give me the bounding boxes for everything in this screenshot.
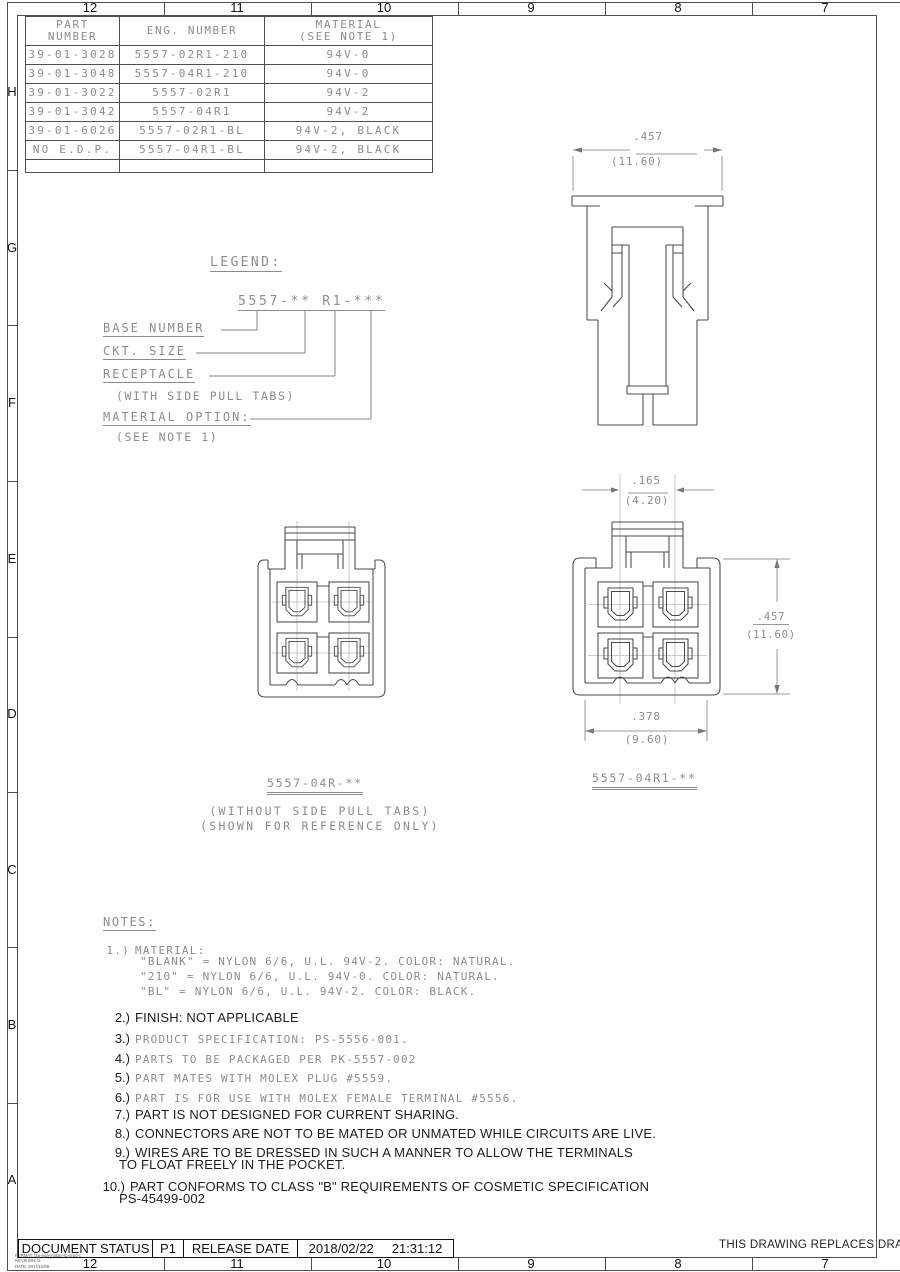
note-4-text: PARTS TO BE PACKAGED PER PK-5557-002: [135, 1053, 417, 1066]
top-ruler-divider: [458, 2, 459, 15]
note-1-sub-210: "210" = NYLON 6/6, U.L. 94V-0. COLOR: NA…: [140, 971, 500, 983]
note-2-text: FINISH: NOT APPLICABLE: [135, 1010, 299, 1025]
front-right-right-dim-mm: (11.60): [746, 629, 796, 641]
cell-material: 94V-0: [265, 46, 433, 65]
cell-part: 39-01-3048: [26, 65, 120, 84]
note-8-number: 8.): [100, 1126, 130, 1141]
note-7: 7.)PART IS NOT DESIGNED FOR CURRENT SHAR…: [100, 1104, 459, 1123]
header-part-line2: NUMBER: [26, 31, 119, 43]
note-1-sub-blank: "BLANK" = NYLON 6/6, U.L. 94V-2. COLOR: …: [140, 956, 515, 968]
bottom-ruler-7: 7: [815, 1257, 835, 1271]
bottom-ruler-divider: [752, 1258, 753, 1270]
bottom-ruler-divider: [311, 1258, 312, 1270]
note-10-text: PART CONFORMS TO CLASS "B" REQUIREMENTS …: [130, 1179, 649, 1194]
note-5: 5.)PART MATES WITH MOLEX PLUG #5559.: [100, 1067, 393, 1086]
note-3-text: PRODUCT SPECIFICATION: PS-5556-001.: [135, 1033, 409, 1046]
table-row: 39-01-3028 5557-02R1-210 94V-0: [26, 46, 433, 65]
front-left-caption-2: (SHOWN FOR REFERENCE ONLY): [200, 820, 440, 833]
release-date-value: 2018/02/22 21:31:12: [298, 1240, 453, 1257]
note-9-continuation: TO FLOAT FREELY IN THE POCKET.: [119, 1158, 345, 1172]
note-7-text: PART IS NOT DESIGNED FOR CURRENT SHARING…: [135, 1107, 459, 1122]
cell-empty: [120, 160, 265, 173]
legend-ckt-size-label: CKT. SIZE: [103, 345, 186, 360]
header-part-number: PART NUMBER: [26, 17, 120, 46]
cell-part: 39-01-6026: [26, 122, 120, 141]
front-right-top-dim-inch: .165: [616, 475, 676, 487]
header-material-line2: (SEE NOTE 1): [265, 31, 432, 43]
note-2-number: 2.): [100, 1010, 130, 1025]
cell-material: 94V-0: [265, 65, 433, 84]
header-eng-number: ENG. NUMBER: [120, 17, 265, 46]
left-ruler-H: H: [5, 85, 19, 99]
legend-receptacle-sub: (WITH SIDE PULL TABS): [116, 390, 295, 403]
header-eng-line1: ENG. NUMBER: [120, 25, 264, 37]
left-ruler-F: F: [5, 396, 19, 410]
replaces-drawing-note: THIS DRAWING REPLACES DRAW: [719, 1239, 900, 1252]
left-ruler-C: C: [5, 863, 19, 877]
parts-table: PART NUMBER ENG. NUMBER MATERIAL (SEE NO…: [25, 16, 433, 173]
note-8-text: CONNECTORS ARE NOT TO BE MATED OR UNMATE…: [135, 1126, 656, 1141]
cell-material: 94V-2, BLACK: [265, 122, 433, 141]
table-row: 39-01-3022 5557-02R1 94V-2: [26, 84, 433, 103]
table-header-row: PART NUMBER ENG. NUMBER MATERIAL (SEE NO…: [26, 17, 433, 46]
legend-part-code: 5557-** R1-***: [238, 295, 385, 311]
note-6-number: 6.): [100, 1090, 130, 1105]
drawing-sheet: 12 11 10 9 8 7 12 11 10 9 8 7 H G F E D …: [0, 0, 900, 1272]
date-line: DATE: 2017/10/06: [15, 1264, 81, 1269]
left-ruler-A: A: [5, 1173, 19, 1187]
front-right-view-label: 5557-04R1-**: [592, 772, 697, 790]
note-4-number: 4.): [100, 1051, 130, 1066]
front-right-bottom-dim-inch: .378: [616, 711, 676, 723]
note-1-sub-bl: "BL" = NYLON 6/6, U.L. 94V-2. COLOR: BLA…: [140, 986, 476, 998]
top-ruler-10: 10: [374, 1, 394, 15]
table-row: 39-01-3042 5557-04R1 94V-2: [26, 103, 433, 122]
legend-material-option-label: MATERIAL OPTION:: [103, 411, 251, 426]
cell-eng: 5557-02R1-210: [120, 46, 265, 65]
left-ruler-divider: [7, 481, 17, 482]
top-ruler-11: 11: [227, 1, 247, 15]
left-ruler-divider: [7, 170, 17, 171]
cell-eng: 5557-02R1-BL: [120, 122, 265, 141]
cell-eng: 5557-04R1-BL: [120, 141, 265, 160]
cell-part: 39-01-3028: [26, 46, 120, 65]
left-ruler-divider: [7, 325, 17, 326]
side-view-dim-inch: .457: [618, 131, 678, 143]
top-ruler-divider: [164, 2, 165, 15]
bottom-ruler-divider: [458, 1258, 459, 1270]
note-2: 2.)FINISH: NOT APPLICABLE: [100, 1007, 299, 1026]
cell-material: 94V-2: [265, 103, 433, 122]
note-8: 8.)CONNECTORS ARE NOT TO BE MATED OR UNM…: [100, 1123, 656, 1142]
front-left-caption-1: (WITHOUT SIDE PULL TABS): [208, 805, 432, 818]
cell-eng: 5557-04R1-210: [120, 65, 265, 84]
notes-title: NOTES:: [103, 916, 156, 931]
cell-eng: 5557-02R1: [120, 84, 265, 103]
bottom-ruler-8: 8: [668, 1257, 688, 1271]
table-empty-row: [26, 160, 433, 173]
table-row: NO E.D.P. 5557-04R1-BL 94V-2, BLACK: [26, 141, 433, 160]
note-10-continuation: PS-45499-002: [119, 1192, 205, 1206]
bottom-ruler-10: 10: [374, 1257, 394, 1271]
document-status-value: P1: [153, 1240, 184, 1257]
table-row: 39-01-6026 5557-02R1-BL 94V-2, BLACK: [26, 122, 433, 141]
top-ruler-divider: [605, 2, 606, 15]
top-ruler-7: 7: [815, 1, 835, 15]
note-7-number: 7.): [100, 1107, 130, 1122]
legend-receptacle-label: RECEPTACLE: [103, 368, 195, 383]
cell-empty: [26, 160, 120, 173]
bottom-ruler-divider: [164, 1258, 165, 1270]
left-ruler-divider: [7, 1103, 17, 1104]
front-right-right-dim-inch: .457: [753, 611, 790, 625]
cell-empty: [265, 160, 433, 173]
note-1-number: 1.): [100, 944, 130, 957]
top-ruler-8: 8: [668, 1, 688, 15]
note-5-text: PART MATES WITH MOLEX PLUG #5559.: [135, 1072, 393, 1085]
outer-border-top: [7, 2, 900, 3]
bottom-ruler-11: 11: [227, 1257, 247, 1271]
front-right-bottom-dim-mm: (9.60): [613, 734, 681, 746]
note-3-number: 3.): [100, 1031, 130, 1046]
top-ruler-9: 9: [521, 1, 541, 15]
format-revision-block: FORMAT: brg-ega-master-tb-prod-c REVISIO…: [15, 1253, 81, 1269]
bottom-ruler-9: 9: [521, 1257, 541, 1271]
top-ruler-12: 12: [80, 1, 100, 15]
cell-part: 39-01-3022: [26, 84, 120, 103]
bottom-ruler-divider: [605, 1258, 606, 1270]
top-ruler-divider: [311, 2, 312, 15]
header-material: MATERIAL (SEE NOTE 1): [265, 17, 433, 46]
cell-part: NO E.D.P.: [26, 141, 120, 160]
legend-title: LEGEND:: [210, 256, 282, 272]
left-ruler-divider: [7, 947, 17, 948]
table-row: 39-01-3048 5557-04R1-210 94V-0: [26, 65, 433, 84]
document-status-bar: DOCUMENT STATUS P1 RELEASE DATE 2018/02/…: [18, 1239, 454, 1258]
release-date: 2018/02/22: [309, 1241, 374, 1256]
front-right-right-dim: .457 (11.60): [744, 606, 798, 641]
note-3: 3.)PRODUCT SPECIFICATION: PS-5556-001.: [100, 1028, 409, 1047]
cell-material: 94V-2: [265, 84, 433, 103]
note-5-number: 5.): [100, 1070, 130, 1085]
release-date-label: RELEASE DATE: [184, 1240, 298, 1257]
left-ruler-D: D: [5, 707, 19, 721]
outer-border-left: [7, 2, 8, 1270]
front-right-top-dim-mm: (4.20): [613, 495, 681, 507]
legend-base-number-label: BASE NUMBER: [103, 322, 204, 337]
cell-eng: 5557-04R1: [120, 103, 265, 122]
cell-material: 94V-2, BLACK: [265, 141, 433, 160]
cell-part: 39-01-3042: [26, 103, 120, 122]
left-ruler-G: G: [5, 241, 19, 255]
side-view-dim-mm: (11.60): [603, 156, 671, 168]
bottom-ruler-12: 12: [80, 1257, 100, 1271]
left-ruler-B: B: [5, 1018, 19, 1032]
note-4: 4.)PARTS TO BE PACKAGED PER PK-5557-002: [100, 1048, 417, 1067]
left-ruler-divider: [7, 792, 17, 793]
front-left-view-label: 5557-04R-**: [267, 777, 363, 795]
top-ruler-divider: [752, 2, 753, 15]
outer-border-bottom: [7, 1270, 900, 1271]
legend-material-sub: (SEE NOTE 1): [116, 431, 218, 444]
left-ruler-E: E: [5, 552, 19, 566]
release-time: 21:31:12: [392, 1241, 443, 1256]
left-ruler-divider: [7, 637, 17, 638]
